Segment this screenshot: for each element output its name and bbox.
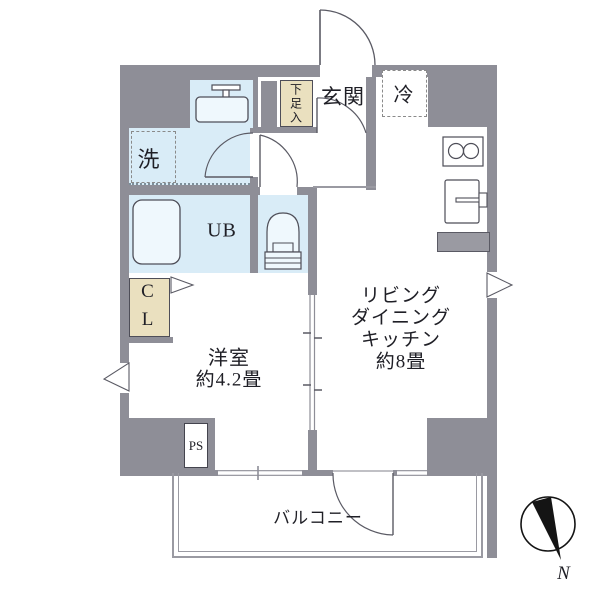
room-label-refrigerator: 冷	[394, 79, 415, 108]
kitchen-faucet-bar	[456, 198, 482, 202]
kitchen-faucet-base	[479, 193, 487, 207]
closet-label-c: C	[141, 281, 155, 303]
sliding-door-track	[308, 295, 317, 430]
bedroom-window-icon	[218, 471, 302, 476]
entrance-door-arc-icon	[320, 10, 375, 65]
room-label-genkan: 玄関	[321, 81, 365, 111]
compass-icon	[521, 497, 575, 560]
room-label-ldk-area: 約8畳	[376, 347, 427, 374]
room-label-balcony: バルコニー	[273, 504, 363, 529]
room-label-unit-bath: UB	[207, 220, 237, 243]
room-label-washer: 洗	[137, 142, 160, 174]
closet-door-mark-icon	[171, 277, 193, 293]
toilet-door-arc-icon	[260, 135, 297, 187]
washroom-door-arc-icon	[205, 133, 253, 177]
bathtub-icon	[133, 200, 180, 264]
toilet-icon	[267, 213, 299, 252]
toilet-tank	[265, 252, 301, 269]
room-label-shoe-cabinet: 下足入	[288, 83, 305, 125]
closet-label-l: L	[142, 309, 155, 331]
washbasin-icon	[196, 97, 248, 122]
washbasin-faucet-icon	[212, 85, 240, 90]
room-label-western-room-area: 約4.2畳	[196, 365, 263, 392]
floor-plan: 玄関 冷 下足入 洗 UB C L 洋室 約4.2畳 リビング ダイニング キッ…	[0, 0, 600, 600]
compass-north-label: N	[557, 563, 571, 585]
ldk-window-icon	[397, 471, 427, 476]
left-window-mark-icon	[104, 363, 129, 391]
label-pipe-space: PS	[189, 438, 203, 454]
right-window-mark-icon	[487, 273, 512, 297]
